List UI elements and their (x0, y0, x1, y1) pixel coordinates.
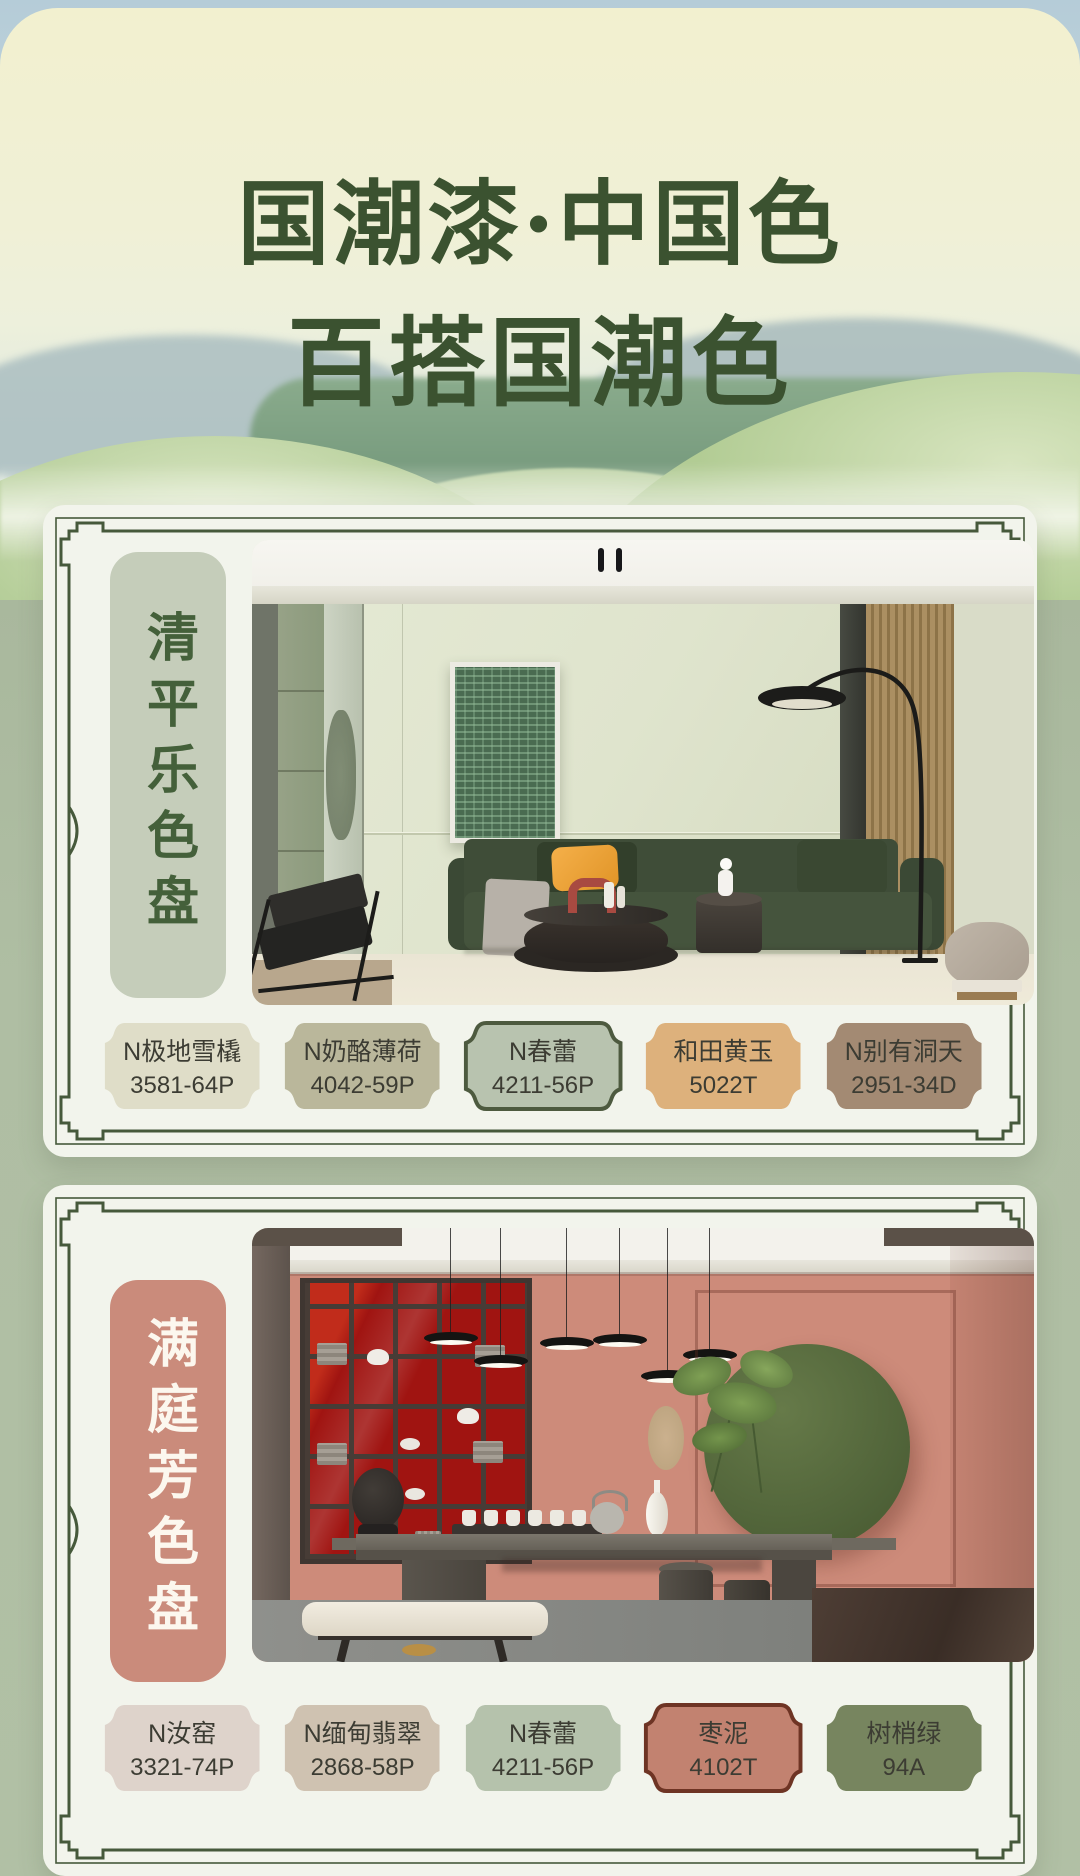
cabinet-shelf-line (278, 770, 324, 772)
swatch-code: 4211-56P (492, 1754, 594, 1782)
color-swatch: N春蕾4211-56P (461, 1700, 625, 1796)
swatch-label: N极地雪橇3581-64P (100, 1018, 264, 1114)
palette-name-pill: 满庭芳色盘 (110, 1280, 226, 1682)
pendant-cord (500, 1228, 501, 1357)
swatch-label: 树梢绿94A (822, 1700, 986, 1796)
table-shadow (502, 1558, 762, 1572)
swatch-code: 2951-34D (851, 1072, 956, 1100)
gray-teapot (590, 1502, 624, 1534)
pale-sprig (648, 1406, 684, 1470)
table-extension-right (832, 1538, 896, 1550)
white-bowl (405, 1488, 425, 1500)
tea-room-photo (252, 1228, 1034, 1662)
tea-cup (528, 1510, 542, 1526)
white-teapot (457, 1408, 479, 1424)
swatch-name: N极地雪橇 (123, 1032, 241, 1068)
color-swatch: N缅甸翡翠2868-58P (280, 1700, 444, 1796)
swatch-label: N奶酪薄荷4042-59P (280, 1018, 444, 1114)
swatch-label: 枣泥4102T (641, 1700, 805, 1796)
white-teapot (367, 1349, 389, 1365)
tea-cup (484, 1510, 498, 1526)
color-swatch: N别有洞天2951-34D (822, 1018, 986, 1114)
swatch-name: N春蕾 (509, 1032, 577, 1068)
swatch-code: 2868-58P (311, 1754, 415, 1782)
palette-card-qingpingle: 清平乐色盘 (43, 505, 1037, 1157)
floor-lamp (732, 640, 992, 970)
swatch-label: N汝窑3321-74P (100, 1700, 264, 1796)
tea-box (473, 1441, 503, 1463)
white-candle (617, 886, 625, 908)
poster: 国潮漆·中国色 百搭国潮色 清平乐色盘 (0, 0, 1080, 1876)
living-room-photo (252, 540, 1034, 1005)
swatch-name: N奶酪薄荷 (304, 1032, 422, 1068)
plant-silhouette (326, 710, 356, 840)
swatch-name: N春蕾 (509, 1714, 577, 1750)
swatch-row: N汝窑3321-74P N缅甸翡翠2868-58P N春蕾4211-56P 枣泥… (100, 1700, 986, 1796)
swatch-code: 4102T (689, 1754, 757, 1782)
swatch-code: 4042-59P (311, 1072, 415, 1100)
swatch-label: N缅甸翡翠2868-58P (280, 1700, 444, 1796)
palette-name-text: 清平乐色盘 (131, 610, 206, 940)
pouf (945, 922, 1029, 986)
white-candle (604, 882, 614, 908)
lounge-chair (252, 884, 412, 1004)
swatch-code: 4211-56P (492, 1072, 594, 1100)
swatch-label: 和田黄玉5022T (641, 1018, 805, 1114)
pendant-cord (566, 1228, 567, 1339)
iron-kettle (352, 1468, 404, 1530)
tea-cup (506, 1510, 520, 1526)
tea-cup (462, 1510, 476, 1526)
palette-name-pill: 清平乐色盘 (110, 552, 226, 998)
swatch-name: 枣泥 (698, 1714, 748, 1750)
white-bowl (400, 1438, 420, 1450)
tea-cup (550, 1510, 564, 1526)
ceiling-beam-right (884, 1228, 1034, 1246)
right-wall-shade (950, 1246, 1034, 1588)
book-stack (952, 980, 1022, 992)
color-swatch: 和田黄玉5022T (641, 1018, 805, 1114)
pendant-glow (546, 1345, 588, 1350)
pendant-glow (480, 1363, 522, 1368)
pendant-cord (450, 1228, 451, 1334)
color-swatch: N汝窑3321-74P (100, 1700, 264, 1796)
tea-box (317, 1343, 347, 1365)
tea-cup (572, 1510, 586, 1526)
swatch-code: 3321-74P (130, 1754, 234, 1782)
swatch-row: N极地雪橇3581-64P N奶酪薄荷4042-59P N春蕾4211-56P … (100, 1018, 986, 1114)
pendant-cord (667, 1228, 668, 1372)
swatch-name: N汝窑 (148, 1714, 216, 1750)
pendant-glow (430, 1340, 472, 1345)
swatch-code: 94A (882, 1754, 925, 1782)
swatch-name: 和田黄玉 (673, 1032, 773, 1068)
swatch-label: N春蕾4211-56P (461, 1018, 625, 1114)
ceiling-spotlight (616, 548, 622, 572)
swatch-name: 树梢绿 (866, 1714, 941, 1750)
swatch-code: 5022T (689, 1072, 757, 1100)
pendant-cord (619, 1228, 620, 1336)
ceiling-beam-left (252, 1228, 402, 1246)
poster-title-line1: 国潮漆·中国色 (0, 150, 1080, 283)
poster-title-line2: 百搭国潮色 (0, 284, 1080, 425)
pendant-glow (599, 1342, 641, 1347)
color-swatch-highlighted: 枣泥4102T (641, 1700, 805, 1796)
astronaut-helmet (720, 858, 732, 870)
color-swatch: N极地雪橇3581-64P (100, 1018, 264, 1114)
color-swatch: N奶酪薄荷4042-59P (280, 1018, 444, 1114)
cabinet-shelf-line (278, 850, 324, 852)
color-swatch-highlighted: N春蕾4211-56P (461, 1018, 625, 1114)
artwork-pattern (455, 667, 555, 838)
ceiling-spotlight (598, 548, 604, 572)
chair-frame-tube (258, 975, 394, 993)
swatch-label: N别有洞天2951-34D (822, 1018, 986, 1114)
marble-floor (812, 1588, 1034, 1662)
book-stand (957, 992, 1017, 1000)
palette-name-text: 满庭芳色盘 (131, 1316, 206, 1646)
color-swatch: 树梢绿94A (822, 1700, 986, 1796)
cabinet-shelf-line (278, 690, 324, 692)
tea-box (317, 1443, 347, 1465)
swatch-name: N缅甸翡翠 (304, 1714, 422, 1750)
swatch-name: N别有洞天 (845, 1032, 963, 1068)
swatch-label: N春蕾4211-56P (461, 1700, 625, 1796)
ceiling-cornice (252, 586, 1034, 604)
gold-bowl (402, 1644, 436, 1656)
astronaut-figurine (718, 870, 733, 896)
white-vase (646, 1492, 668, 1536)
swatch-code: 3581-64P (130, 1072, 234, 1100)
palette-card-mantingfang: 满庭芳色盘 (43, 1185, 1037, 1876)
ceiling-shadow-line (252, 1272, 1034, 1276)
wall-artwork (450, 662, 560, 843)
dark-curtain (252, 1246, 290, 1646)
bench-cushion (302, 1602, 548, 1636)
